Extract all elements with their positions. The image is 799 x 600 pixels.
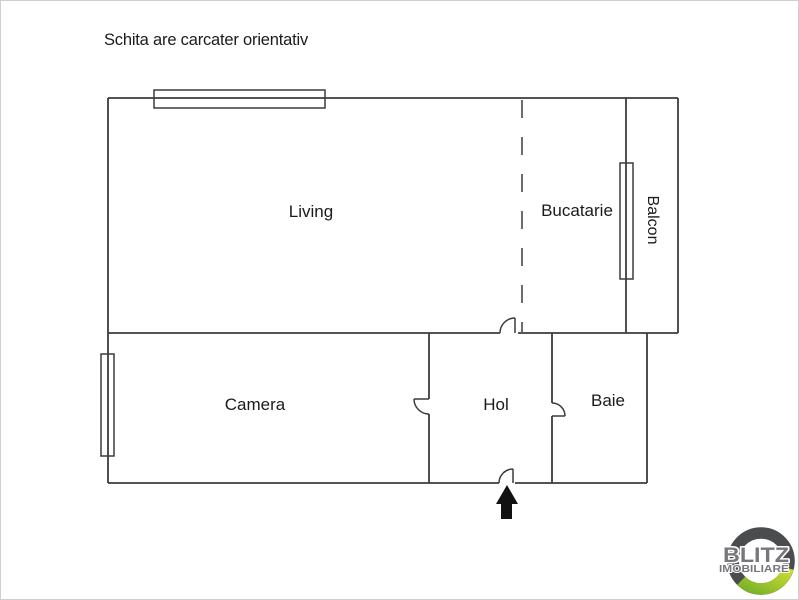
- room-label-hol: Hol: [483, 395, 509, 415]
- door-arc-camera: [414, 399, 429, 414]
- door-arc-baie: [552, 403, 565, 416]
- room-label-balcon: Balcon: [643, 196, 661, 245]
- room-label-camera: Camera: [225, 395, 285, 415]
- entrance-arrow-icon: [496, 485, 518, 519]
- room-label-living: Living: [289, 202, 333, 222]
- floor-plan-drawing: [1, 1, 799, 600]
- room-label-baie: Baie: [591, 391, 625, 411]
- window-top: [154, 90, 325, 108]
- door-arc-living: [500, 318, 515, 333]
- door-arc-entrance: [499, 469, 513, 483]
- room-label-bucatarie: Bucatarie: [541, 201, 613, 221]
- brand-logo: BLITZ IMOBILIARE: [712, 518, 799, 600]
- logo-subtitle-text: IMOBILIARE: [719, 563, 789, 575]
- brand-logo-graphic: BLITZ IMOBILIARE: [712, 518, 799, 600]
- outer-walls: [108, 98, 678, 483]
- floor-plan-canvas: Schita are carcater orientativ: [0, 0, 799, 600]
